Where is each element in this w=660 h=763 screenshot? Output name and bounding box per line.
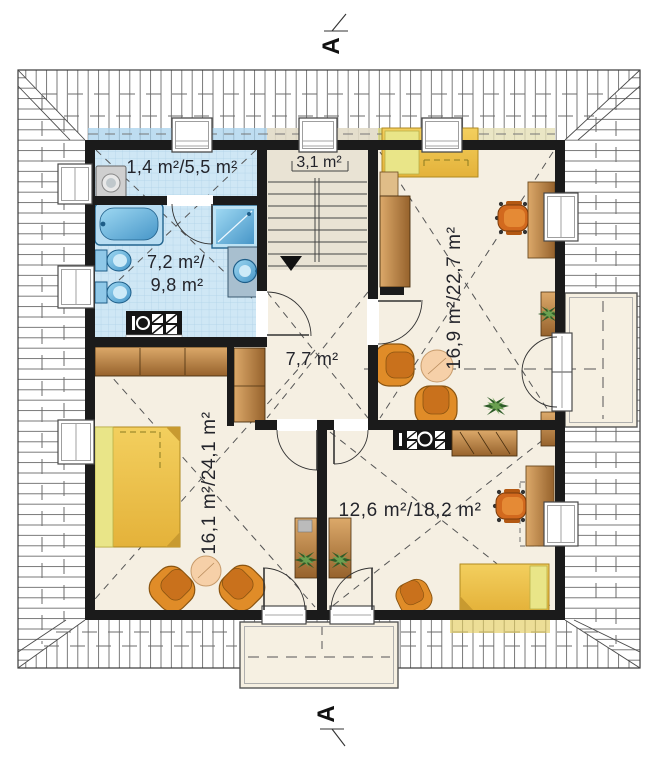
bidet bbox=[95, 282, 131, 303]
window bbox=[544, 502, 578, 546]
shelf bbox=[380, 172, 398, 196]
balcony-bottom bbox=[240, 622, 398, 688]
wardrobe-base bbox=[380, 287, 404, 295]
hall-area-label: 7,7 m² bbox=[286, 349, 339, 369]
wardrobe bbox=[380, 196, 410, 287]
wardrobe bbox=[452, 430, 517, 456]
wardrobe bbox=[95, 347, 230, 376]
section-letter-top: A bbox=[318, 37, 345, 54]
bed-pillow bbox=[530, 566, 547, 609]
section-marker-bottom: A bbox=[313, 705, 345, 746]
window bbox=[58, 420, 94, 464]
bathroom-area-label-line1: 7,2 m²/ bbox=[147, 252, 205, 272]
section-letter-bottom: A bbox=[313, 705, 340, 722]
balcony-right bbox=[565, 293, 637, 427]
bedroom-bottom-right-area-label: 12,6 m²/18,2 m² bbox=[338, 500, 481, 521]
wardrobe bbox=[234, 348, 265, 422]
section-marker-top: A bbox=[318, 14, 348, 55]
floor-plan: 1,4 m²/5,5 m² 3,1 m² 7,2 m²/ 9,8 m² 16,9… bbox=[0, 0, 660, 763]
window bbox=[58, 266, 94, 308]
bedroom-right-area-label: 16,9 m²/22,7 m² bbox=[444, 226, 465, 369]
toilet bbox=[95, 250, 131, 271]
kitchenette-unit bbox=[393, 428, 455, 450]
bedroom-left-area-label: 16,1 m²/24,1 m² bbox=[199, 411, 220, 554]
shelf bbox=[329, 518, 351, 578]
roof-window bbox=[422, 118, 462, 152]
bathroom-area-label-line2: 9,8 m² bbox=[151, 275, 204, 295]
laundry-appliance-unit bbox=[126, 311, 182, 341]
laundry-area-label: 1,4 m²/5,5 m² bbox=[127, 157, 238, 177]
window bbox=[544, 193, 578, 241]
bed-pillow bbox=[95, 427, 113, 547]
roof-window bbox=[172, 118, 212, 152]
armchair bbox=[374, 344, 414, 386]
roof-window bbox=[299, 118, 337, 152]
bed-pillow bbox=[385, 131, 419, 174]
window bbox=[58, 164, 92, 204]
washbasin-counter bbox=[228, 247, 262, 297]
floor-plan-canvas: 1,4 m²/5,5 m² 3,1 m² 7,2 m²/ 9,8 m² 16,9… bbox=[0, 0, 660, 763]
staircase-area-label: 3,1 m² bbox=[296, 154, 342, 171]
